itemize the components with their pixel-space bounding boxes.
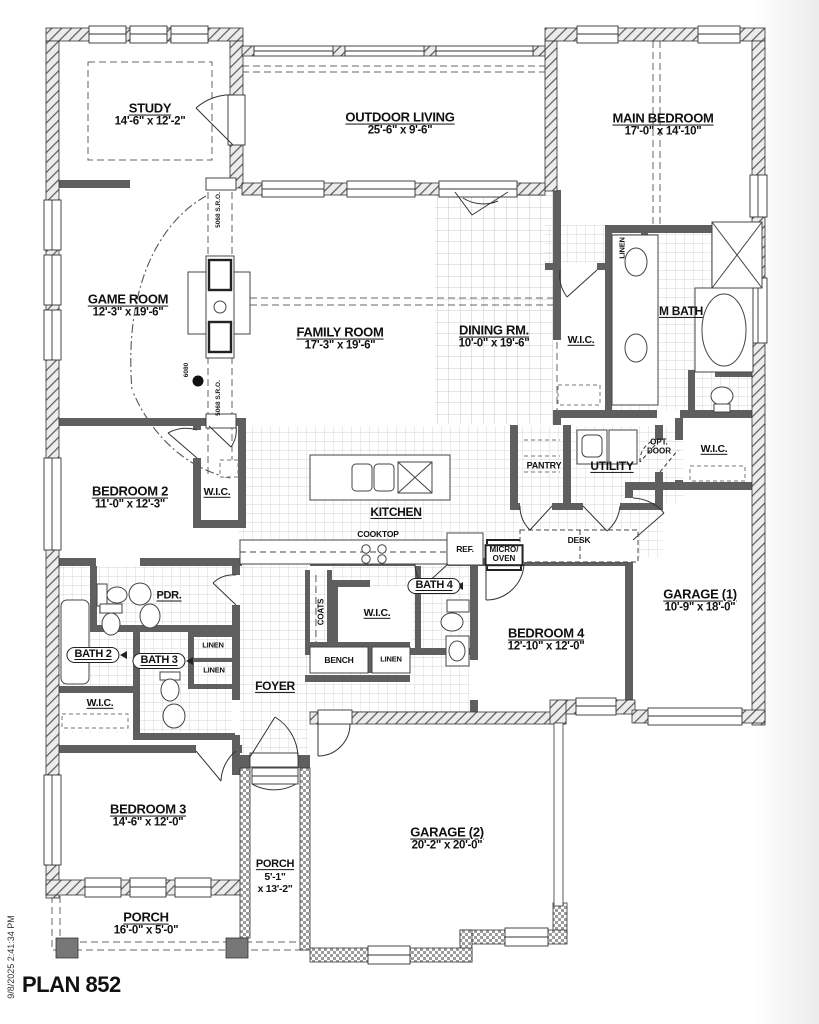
label-linen-bench: LINEN bbox=[380, 656, 402, 665]
label-linen-hall-2: LINEN bbox=[203, 667, 225, 676]
label-refrigerator: REF. bbox=[456, 544, 474, 554]
label-coats: COATS bbox=[316, 599, 325, 625]
room-label-wic-main: W.I.C. bbox=[568, 334, 595, 346]
room-label-study: STUDY 14'-6" x 12'-2" bbox=[115, 101, 186, 130]
room-label-game-room: GAME ROOM 12'-3" x 19'-6" bbox=[88, 292, 168, 321]
room-label-bedroom2: BEDROOM 2 11'-0" x 12'-3" bbox=[92, 484, 168, 513]
room-label-utility: UTILITY bbox=[590, 459, 633, 473]
label-linen-main: LINEN bbox=[619, 237, 628, 259]
room-label-wic-hall: W.I.C. bbox=[364, 607, 391, 619]
room-label-bedroom3: BEDROOM 3 14'-6" x 12'-0" bbox=[110, 802, 186, 831]
room-label-wic-bedroom3: W.I.C. bbox=[87, 697, 114, 709]
room-label-kitchen: KITCHEN bbox=[370, 505, 421, 519]
room-label-family-room: FAMILY ROOM 17'-3" x 19'-6" bbox=[297, 325, 384, 354]
room-label-porch-side: PORCH 5'-1" x 13'-2" bbox=[256, 858, 294, 896]
print-timestamp: 9/8/2025 2:41:34 PM bbox=[6, 902, 16, 1012]
floor-plan-page: STUDY 14'-6" x 12'-2" OUTDOOR LIVING 25'… bbox=[0, 0, 819, 1024]
kitchen-island bbox=[310, 455, 450, 500]
cooktop-counter bbox=[240, 540, 448, 564]
label-linen-hall-1: LINEN bbox=[202, 642, 224, 651]
annotation-opening-game: 6080 bbox=[183, 363, 191, 377]
room-label-bath4: BATH 4 bbox=[407, 578, 460, 594]
label-bench: BENCH bbox=[324, 655, 353, 665]
room-label-bedroom4: BEDROOM 4 12'-10" x 12'-0" bbox=[508, 626, 585, 655]
label-pantry: PANTRY bbox=[527, 461, 562, 472]
label-desk: DESK bbox=[568, 535, 591, 545]
room-label-wic-right: W.I.C. bbox=[701, 443, 728, 455]
room-label-outdoor-living: OUTDOOR LIVING 25'-6" x 9'-6" bbox=[345, 110, 454, 139]
label-cooktop: COOKTOP bbox=[357, 529, 398, 539]
label-micro-oven: MICRO/ OVEN bbox=[485, 544, 524, 566]
room-label-foyer: FOYER bbox=[255, 679, 295, 693]
room-label-porch-front: PORCH 16'-0" x 5'-0" bbox=[114, 910, 179, 939]
fireplace bbox=[188, 256, 250, 358]
floor-outlet-dot bbox=[193, 376, 204, 387]
annotation-door-hall: 5068 S.R.O. bbox=[215, 380, 223, 416]
room-label-garage1: GARAGE (1) 10'-9" x 18'-0" bbox=[663, 587, 737, 616]
room-label-powder: PDR. bbox=[156, 590, 181, 603]
room-label-garage2: GARAGE (2) 20'-2" x 20'-0" bbox=[410, 825, 484, 854]
annotation-door-study: 5068 S.R.O. bbox=[215, 192, 223, 228]
room-label-wic-bedroom2: W.I.C. bbox=[204, 486, 231, 498]
room-label-bath3: BATH 3 bbox=[132, 653, 185, 669]
label-opt-door: OPT. DOOR bbox=[647, 438, 671, 457]
room-label-main-bedroom: MAIN BEDROOM 17'-0" x 14'-10" bbox=[612, 111, 713, 140]
room-label-bath2: BATH 2 bbox=[66, 647, 119, 663]
plan-title: PLAN 852 bbox=[22, 972, 121, 998]
room-label-dining-room: DINING RM. 10'-0" x 19'-6" bbox=[459, 323, 530, 352]
room-label-m-bath: M BATH bbox=[659, 304, 703, 318]
